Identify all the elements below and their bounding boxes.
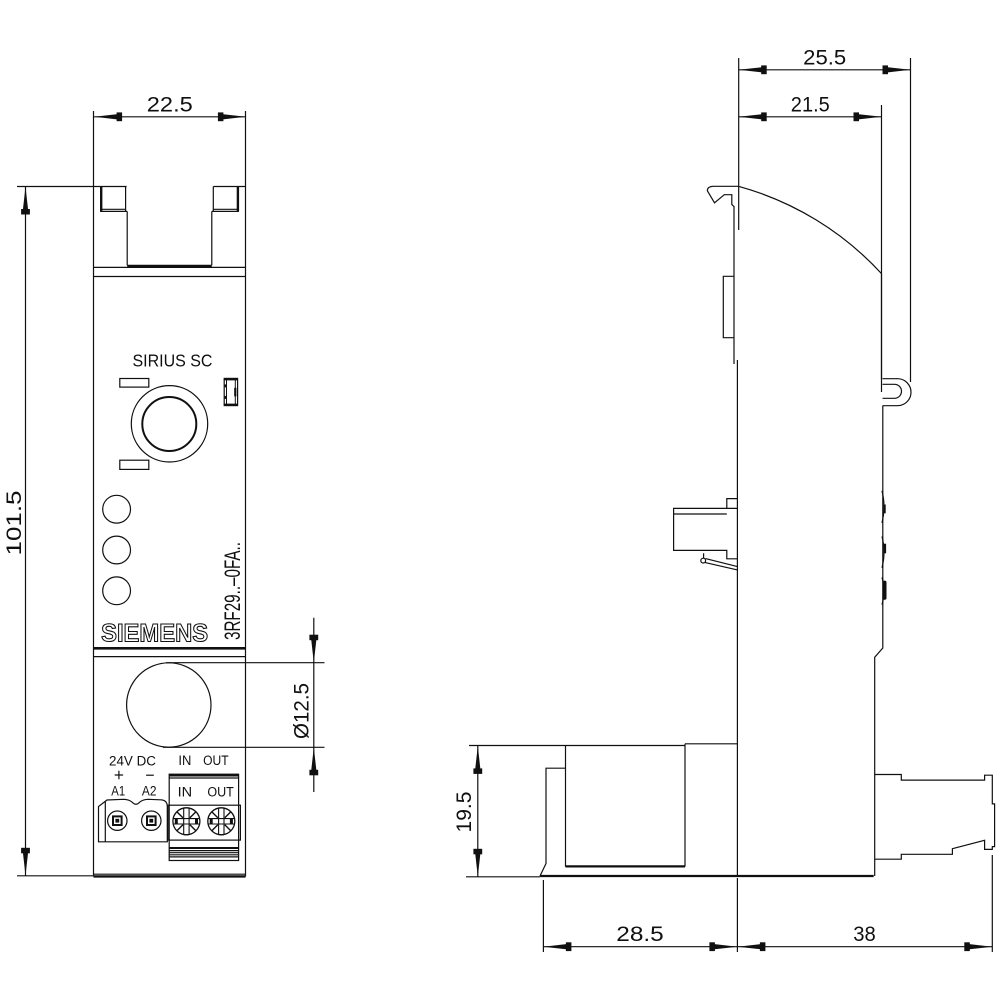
svg-text:24V DC: 24V DC [109,753,156,768]
svg-text:3RF29..–0FA..: 3RF29..–0FA.. [220,542,245,640]
svg-text:A2: A2 [142,784,157,799]
svg-text:SIRIUS SC: SIRIUS SC [133,350,213,370]
svg-text:38: 38 [853,922,876,946]
svg-text:25.5: 25.5 [803,46,846,70]
svg-text:19.5: 19.5 [452,791,476,832]
svg-text:OUT: OUT [203,753,229,768]
svg-text:22.5: 22.5 [147,93,193,117]
svg-text:A1: A1 [111,784,125,799]
svg-text:Ø12.5: Ø12.5 [290,683,314,739]
svg-text:IN: IN [178,785,193,800]
svg-text:21.5: 21.5 [791,93,830,117]
svg-text:OUT: OUT [207,785,234,800]
svg-text:IN: IN [178,753,191,768]
svg-text:28.5: 28.5 [616,922,664,946]
svg-text:101.5: 101.5 [2,490,26,555]
svg-text:SIEMENS: SIEMENS [101,620,208,648]
